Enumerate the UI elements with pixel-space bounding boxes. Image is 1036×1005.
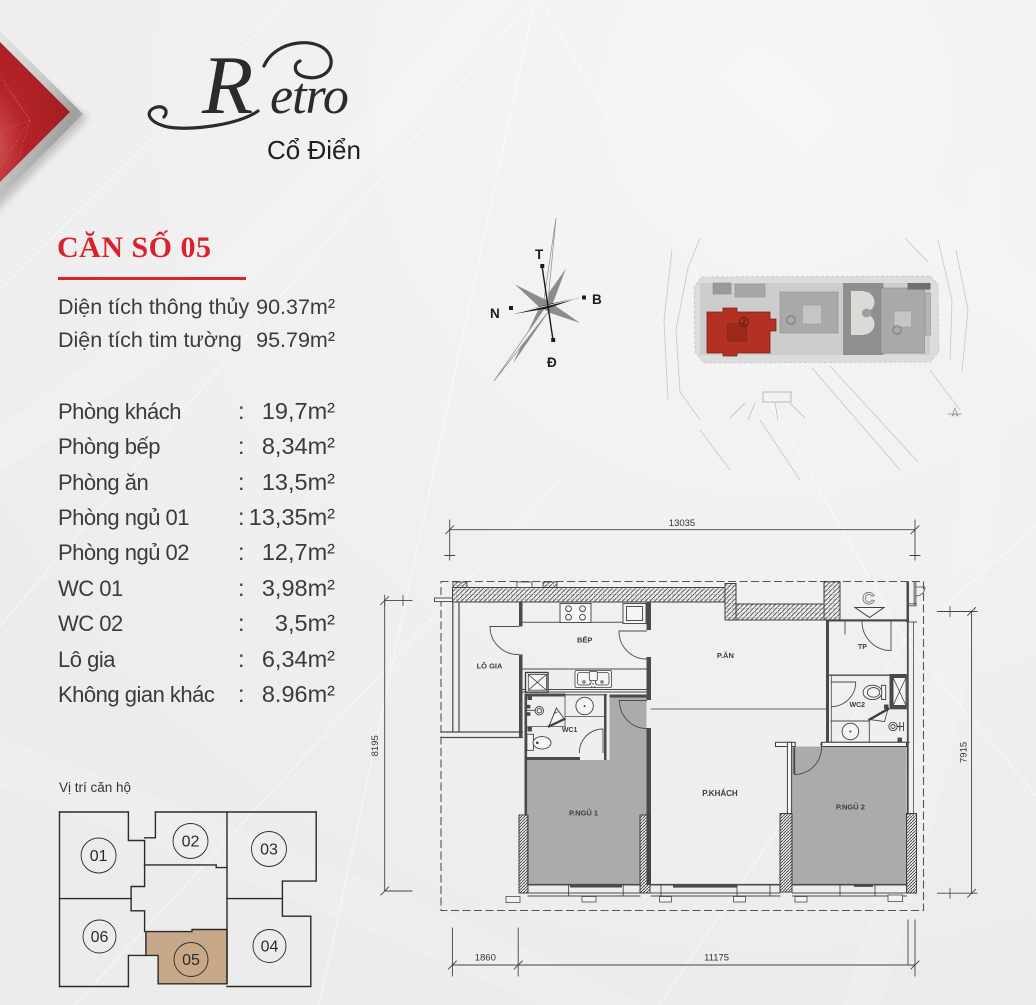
- svg-text:04: 04: [261, 939, 279, 956]
- svg-text:P.NGỦ 1: P.NGỦ 1: [569, 809, 598, 818]
- svg-text:P.KHÁCH: P.KHÁCH: [702, 789, 738, 798]
- svg-text:11175: 11175: [704, 953, 729, 964]
- svg-text:03: 03: [260, 842, 278, 859]
- svg-text:P.NGỦ 2: P.NGỦ 2: [836, 803, 865, 812]
- svg-text:1860: 1860: [475, 953, 496, 964]
- svg-text:Đ: Đ: [547, 355, 557, 370]
- svg-text:06: 06: [91, 929, 109, 946]
- svg-text:02: 02: [182, 834, 200, 851]
- svg-text:TP: TP: [858, 644, 867, 651]
- svg-text:7915: 7915: [959, 742, 970, 763]
- svg-text:N: N: [490, 306, 500, 321]
- svg-text:B: B: [592, 292, 602, 307]
- svg-text:C: C: [862, 589, 874, 608]
- svg-text:WC2: WC2: [850, 702, 866, 709]
- svg-text:01: 01: [90, 848, 108, 865]
- svg-text:13035: 13035: [669, 518, 695, 529]
- svg-text:BẾP: BẾP: [577, 635, 592, 645]
- svg-text:P.ĂN: P.ĂN: [717, 651, 734, 660]
- svg-text:05: 05: [182, 952, 200, 969]
- svg-text:8195: 8195: [370, 735, 381, 756]
- svg-text:LÔ GIA: LÔ GIA: [477, 662, 503, 671]
- svg-text:WC1: WC1: [562, 727, 578, 734]
- svg-text:T: T: [535, 247, 544, 262]
